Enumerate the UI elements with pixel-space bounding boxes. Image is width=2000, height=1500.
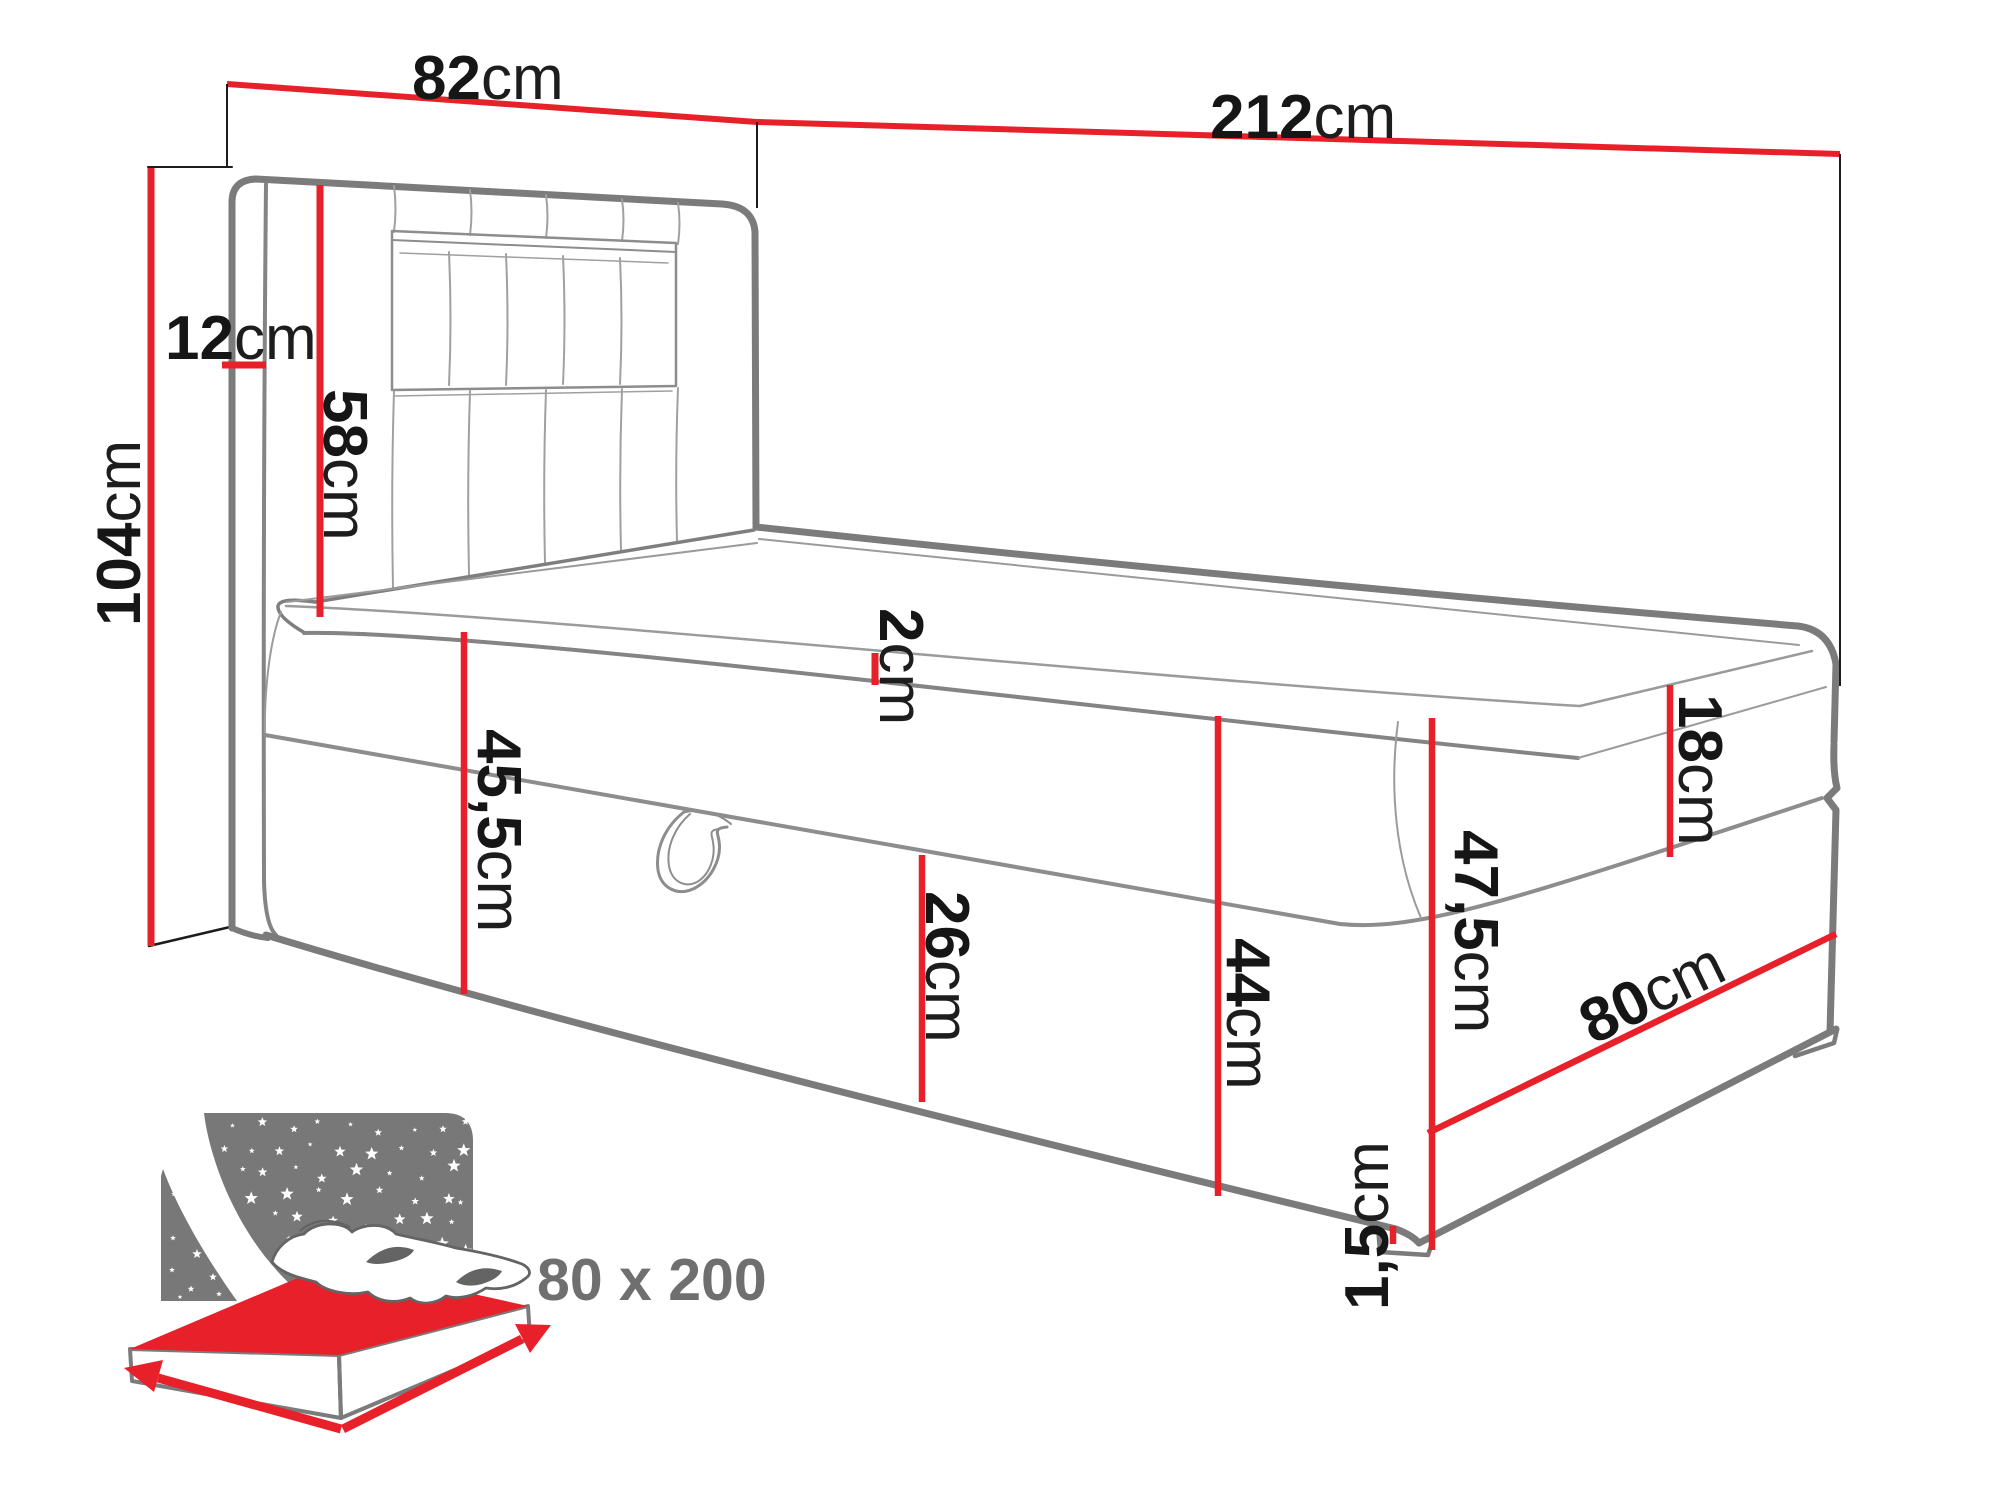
svg-text:80 x 200: 80 x 200 bbox=[537, 1247, 767, 1313]
svg-text:104cm: 104cm bbox=[85, 440, 154, 626]
svg-text:58cm: 58cm bbox=[310, 389, 379, 541]
svg-text:18cm: 18cm bbox=[1665, 694, 1734, 846]
svg-text:45,5cm: 45,5cm bbox=[464, 729, 533, 932]
svg-text:82cm: 82cm bbox=[412, 44, 564, 113]
svg-text:12cm: 12cm bbox=[165, 304, 317, 373]
svg-text:2cm: 2cm bbox=[866, 608, 935, 725]
svg-text:44cm: 44cm bbox=[1213, 938, 1282, 1090]
svg-text:1,5cm: 1,5cm bbox=[1333, 1141, 1402, 1310]
svg-text:26cm: 26cm bbox=[912, 891, 981, 1043]
svg-text:47,5cm: 47,5cm bbox=[1441, 830, 1510, 1033]
svg-text:212cm: 212cm bbox=[1210, 83, 1396, 152]
